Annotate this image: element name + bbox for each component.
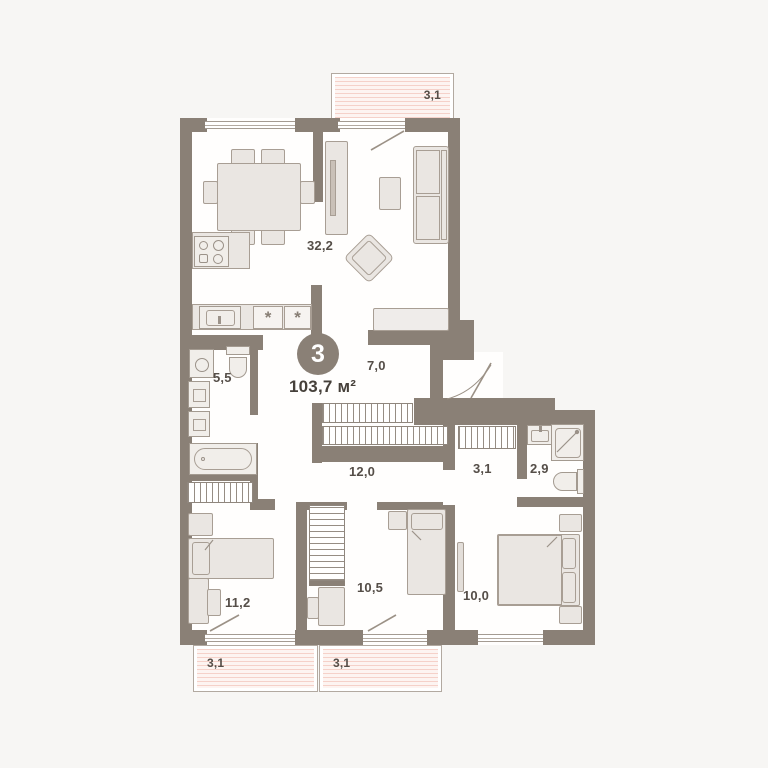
washing-machine [189, 349, 214, 378]
dining-chair [300, 181, 315, 204]
pillow [562, 572, 576, 603]
desk [318, 587, 345, 626]
wardrobe [322, 403, 413, 423]
wall [517, 425, 527, 479]
burner-icon [199, 241, 208, 250]
room-area-label-corridor: 12,0 [349, 465, 375, 478]
rooms-count-badge: 3 [297, 333, 339, 375]
burner-module-icon: * [284, 306, 311, 329]
wall [180, 118, 207, 132]
shower-cabin [551, 424, 584, 461]
toilet [226, 346, 250, 355]
wall [180, 630, 207, 645]
room-area-label-bathroom: 5,5 [213, 371, 232, 384]
toilet-bowl [553, 472, 577, 491]
shower-tray [555, 428, 581, 458]
wall [312, 446, 448, 462]
dining-table [217, 163, 301, 231]
storage-bench [373, 308, 449, 331]
washbasin [527, 425, 552, 445]
room-area-label-closet: 3,1 [473, 462, 492, 475]
room-area-label-kitchen-living: 32,2 [307, 239, 333, 252]
wall [180, 475, 257, 481]
balcony-bottom-left: 3,1 [193, 645, 318, 692]
wall [448, 118, 460, 332]
door-gap [347, 502, 377, 510]
nightstand [559, 514, 582, 532]
toilet-bowl [229, 357, 247, 378]
balcony-door-window [338, 121, 405, 129]
desk [188, 578, 209, 624]
wall [250, 345, 258, 415]
door-gap [275, 499, 296, 510]
sofa-cushion [416, 196, 440, 240]
wall [250, 499, 275, 510]
wardrobe [187, 482, 253, 503]
bed-single [188, 538, 274, 579]
burner-icon [213, 254, 223, 264]
room-area-label-shower: 2,9 [530, 462, 549, 475]
sofa-cushion [416, 150, 440, 194]
coffee-table [379, 177, 401, 210]
tv-on-wall [457, 542, 464, 592]
bathtub [189, 443, 257, 475]
wall [295, 630, 363, 645]
pillow [192, 542, 210, 575]
washer-drum-icon [195, 358, 209, 372]
wall [543, 630, 595, 645]
door-gap [443, 470, 455, 505]
wall [414, 398, 555, 425]
bed-double [497, 534, 580, 606]
balcony-top: 3,1 [331, 73, 454, 122]
wall [517, 497, 583, 507]
faucet-icon [539, 426, 542, 432]
bed-single [407, 509, 446, 595]
wall [295, 118, 340, 132]
window [478, 634, 543, 642]
pillow [411, 513, 443, 530]
door-gap [250, 415, 258, 443]
wall [430, 360, 443, 400]
dining-chair [203, 181, 218, 204]
room-area-label-hallway: 7,0 [367, 359, 386, 372]
balcony-area-label: 3,1 [207, 657, 224, 669]
room-area-label-bedroom-right: 10,0 [463, 589, 489, 602]
wall [296, 502, 307, 632]
tv-stand [325, 141, 348, 235]
wardrobe [458, 426, 516, 449]
wardrobe-end-cap [309, 581, 345, 586]
window [205, 121, 295, 129]
wardrobe [309, 505, 345, 581]
total-area-label: 103,7 м² [289, 377, 356, 397]
balcony-area-label: 3,1 [424, 89, 441, 101]
kitchen-hob [194, 236, 229, 267]
sink-basin [193, 419, 206, 431]
pillow [562, 538, 576, 569]
window [205, 634, 295, 642]
tv-icon [330, 160, 336, 216]
burner-icon [199, 254, 208, 263]
bathroom-cabinet-sink [188, 381, 210, 408]
dining-chair [261, 229, 285, 245]
toilet-tank [577, 469, 584, 494]
balcony-area-label: 3,1 [333, 657, 350, 669]
wall [427, 630, 478, 645]
mattress [498, 535, 562, 605]
nightstand [388, 511, 407, 530]
sofa [413, 146, 449, 244]
chair [207, 589, 221, 616]
nightstand [559, 606, 582, 624]
wardrobe [322, 426, 448, 445]
faucet-icon [218, 316, 221, 324]
balcony-bottom-middle: 3,1 [319, 645, 442, 692]
sink-basin [193, 389, 206, 402]
burner-module-icon: * [253, 306, 283, 329]
wall [583, 410, 595, 645]
kitchen-sink [199, 306, 241, 329]
chair [307, 597, 319, 619]
nightstand [188, 513, 213, 536]
door-gap [517, 479, 527, 497]
floor-plan: 3,1 3,1 3,1 [0, 0, 768, 768]
burner-icon [213, 240, 224, 251]
bathroom-cabinet-sink [188, 411, 210, 437]
window [363, 634, 427, 642]
room-area-label-bedroom-middle: 10,5 [357, 581, 383, 594]
sofa-back [441, 150, 447, 240]
room-area-label-bedroom-left: 11,2 [225, 596, 250, 609]
drain-icon [201, 457, 205, 461]
